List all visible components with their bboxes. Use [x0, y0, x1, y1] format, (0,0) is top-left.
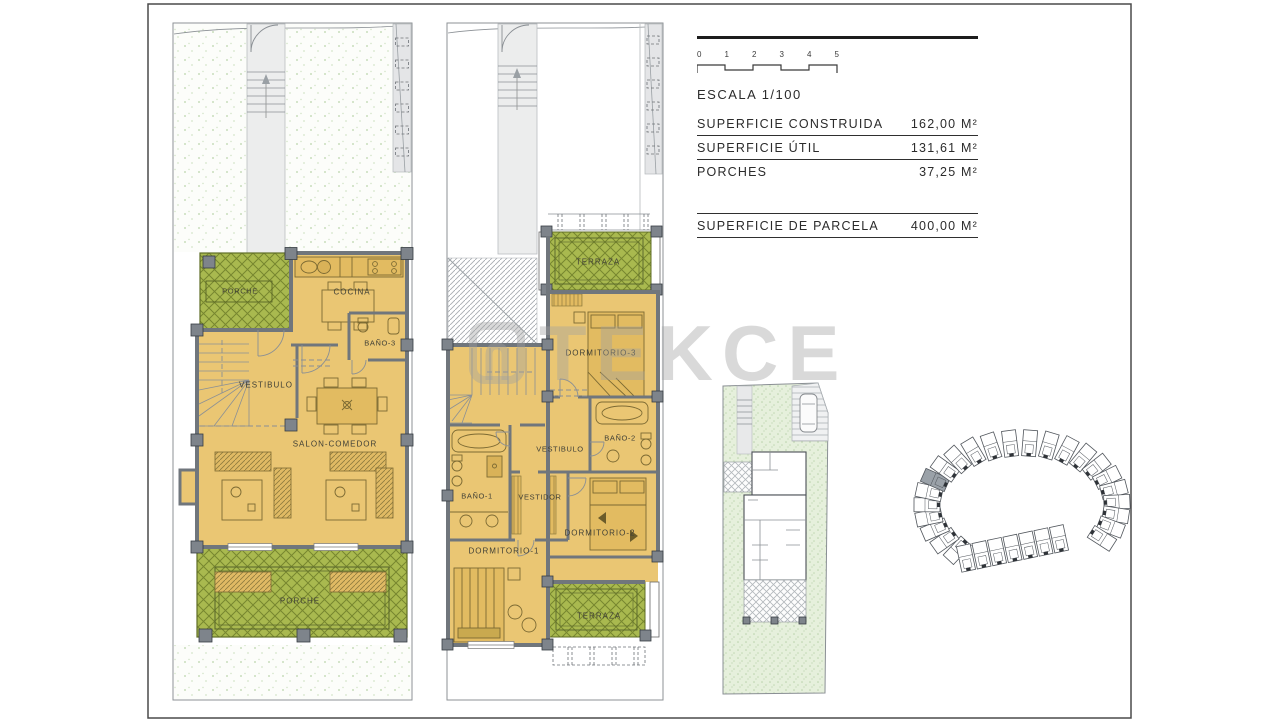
legend-row: PORCHES 37,25 M² — [697, 160, 978, 183]
plan-sheet: .wall{stroke:#70767c;stroke-width:4;fill… — [0, 0, 1280, 720]
scale-tick: 4 — [807, 50, 811, 59]
walkway — [247, 24, 285, 253]
dev-unit — [1022, 430, 1038, 457]
car — [800, 394, 817, 432]
room-label-bano1: BAÑO-1 — [461, 492, 493, 501]
scale-tick: 0 — [697, 50, 701, 59]
room-label-salon: SALON-COMEDOR — [293, 440, 378, 449]
legend-row-label: SUPERFICIE ÚTIL — [697, 141, 821, 155]
legend-row: SUPERFICIE ÚTIL 131,61 M² — [697, 136, 978, 160]
legend-parcel-row: SUPERFICIE DE PARCELA 400,00 M² — [697, 213, 978, 238]
room-label-bano2: BAÑO-2 — [604, 434, 636, 443]
legend-row-value: 37,25 M² — [919, 165, 978, 179]
room-label-porche-bottom: PORCHE — [280, 597, 320, 606]
legend-row-value: 162,00 M² — [911, 117, 978, 131]
legend-row-value: 131,61 M² — [911, 141, 978, 155]
room-label-vestibulo-g: VESTIBULO — [239, 381, 293, 390]
architectural-drawing: .wall{stroke:#70767c;stroke-width:4;fill… — [0, 0, 1280, 720]
legend-rule — [697, 36, 978, 39]
legend-row-value: 400,00 M² — [911, 219, 978, 233]
development-site-plan — [914, 430, 1130, 572]
room-label-cocina: COCINA — [333, 288, 370, 297]
scale-tick: 2 — [752, 50, 756, 59]
room-label-terraza-bottom: TERRAZA — [577, 612, 621, 621]
room-label-vestibulo-f: VESTIBULO — [536, 445, 584, 454]
scale-tick: 1 — [725, 50, 729, 59]
legend-row: SUPERFICIE CONSTRUIDA 162,00 M² — [697, 112, 978, 136]
legend-panel: 0 1 2 3 4 5 ESCALA 1/100 SUPERFICIE CONS… — [697, 36, 978, 238]
scale-bar-icon — [697, 61, 839, 73]
room-label-bano3: BAÑO-3 — [364, 339, 396, 348]
scale-bar-ticks: 0 1 2 3 4 5 — [697, 50, 839, 59]
room-label-dormitorio3: DORMITORIO-3 — [566, 349, 637, 358]
legend-row-label: SUPERFICIE DE PARCELA — [697, 219, 879, 233]
legend-row-label: PORCHES — [697, 165, 767, 179]
house-footprint — [744, 452, 806, 580]
room-label-vestidor: VESTIDOR — [518, 493, 561, 502]
scale-tick: 3 — [780, 50, 784, 59]
room-label-dormitorio1: DORMITORIO-1 — [469, 547, 540, 556]
kitchen-counter — [295, 257, 403, 277]
scale-label: ESCALA 1/100 — [697, 87, 978, 102]
parcel-site-plan — [723, 383, 828, 694]
room-label-dormitorio2: DORMITORIO-2 — [565, 529, 636, 538]
dev-unit — [1002, 430, 1019, 458]
legend-row-label: SUPERFICIE CONSTRUIDA — [697, 117, 883, 131]
scale-tick: 5 — [835, 50, 839, 59]
bed-dorm2 — [590, 478, 646, 550]
room-label-terraza-top: TERRAZA — [576, 258, 620, 267]
first-floor-plan — [442, 23, 663, 700]
room-label-porche-top: PORCHE — [222, 287, 258, 296]
